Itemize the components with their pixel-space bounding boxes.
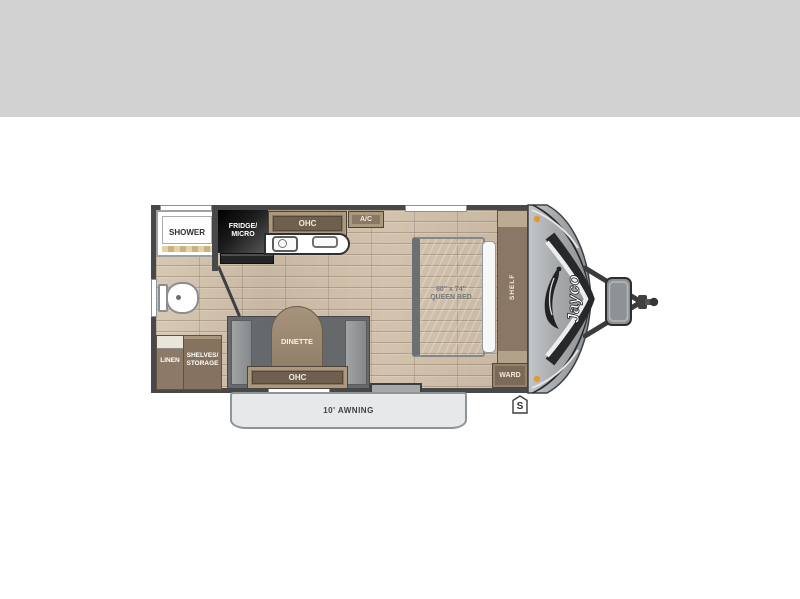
page: SHOWER FRIDGE/ MICRO OHC A/C 60" x 74" Q…: [0, 0, 800, 599]
counter-corner: [157, 336, 183, 349]
linen-label: LINEN: [156, 357, 184, 365]
fridge-label: FRIDGE/ MICRO: [218, 223, 268, 240]
trailer-hitch: [583, 262, 661, 342]
dinette-label: DINETTE: [271, 337, 323, 346]
dinette-bench-right: [345, 320, 367, 385]
window-bath-side: [151, 279, 157, 317]
toilet-flush-icon: [176, 295, 181, 300]
air-conditioner: A/C: [348, 211, 384, 228]
shower-threshold: [162, 246, 212, 252]
dinette-overhead-cabinet: OHC: [247, 366, 348, 389]
ac-label: A/C: [349, 216, 383, 224]
dinette-ohc-label: OHC: [248, 373, 347, 383]
hitch-ball-icon: [650, 298, 658, 306]
stove-burner-icon: [278, 239, 287, 248]
jayco-logo: Jayco: [564, 275, 583, 323]
marker-light-top: [534, 216, 540, 222]
bed-pillows: [482, 241, 496, 353]
window-bedroom: [405, 205, 467, 212]
jayco-bird-head: [557, 267, 562, 272]
awning-label: 10' AWNING: [230, 406, 467, 416]
bed-size-label: 60" x 74" QUEEN BED: [420, 286, 482, 303]
stabilizer-badge: S: [512, 395, 528, 414]
toilet: [166, 282, 199, 314]
fridge-microwave: FRIDGE/ MICRO: [218, 210, 268, 253]
stabilizer-label: S: [517, 401, 524, 412]
marker-light-bottom: [534, 376, 540, 382]
floorplan-image: SHOWER FRIDGE/ MICRO OHC A/C 60" x 74" Q…: [0, 0, 800, 599]
shower-label: SHOWER: [158, 228, 216, 238]
shelves-storage-label: SHELVES/ STORAGE: [183, 352, 222, 368]
kitchen-ohc-label: OHC: [269, 219, 346, 229]
sink-icon: [312, 236, 338, 248]
shower: SHOWER: [156, 210, 218, 257]
